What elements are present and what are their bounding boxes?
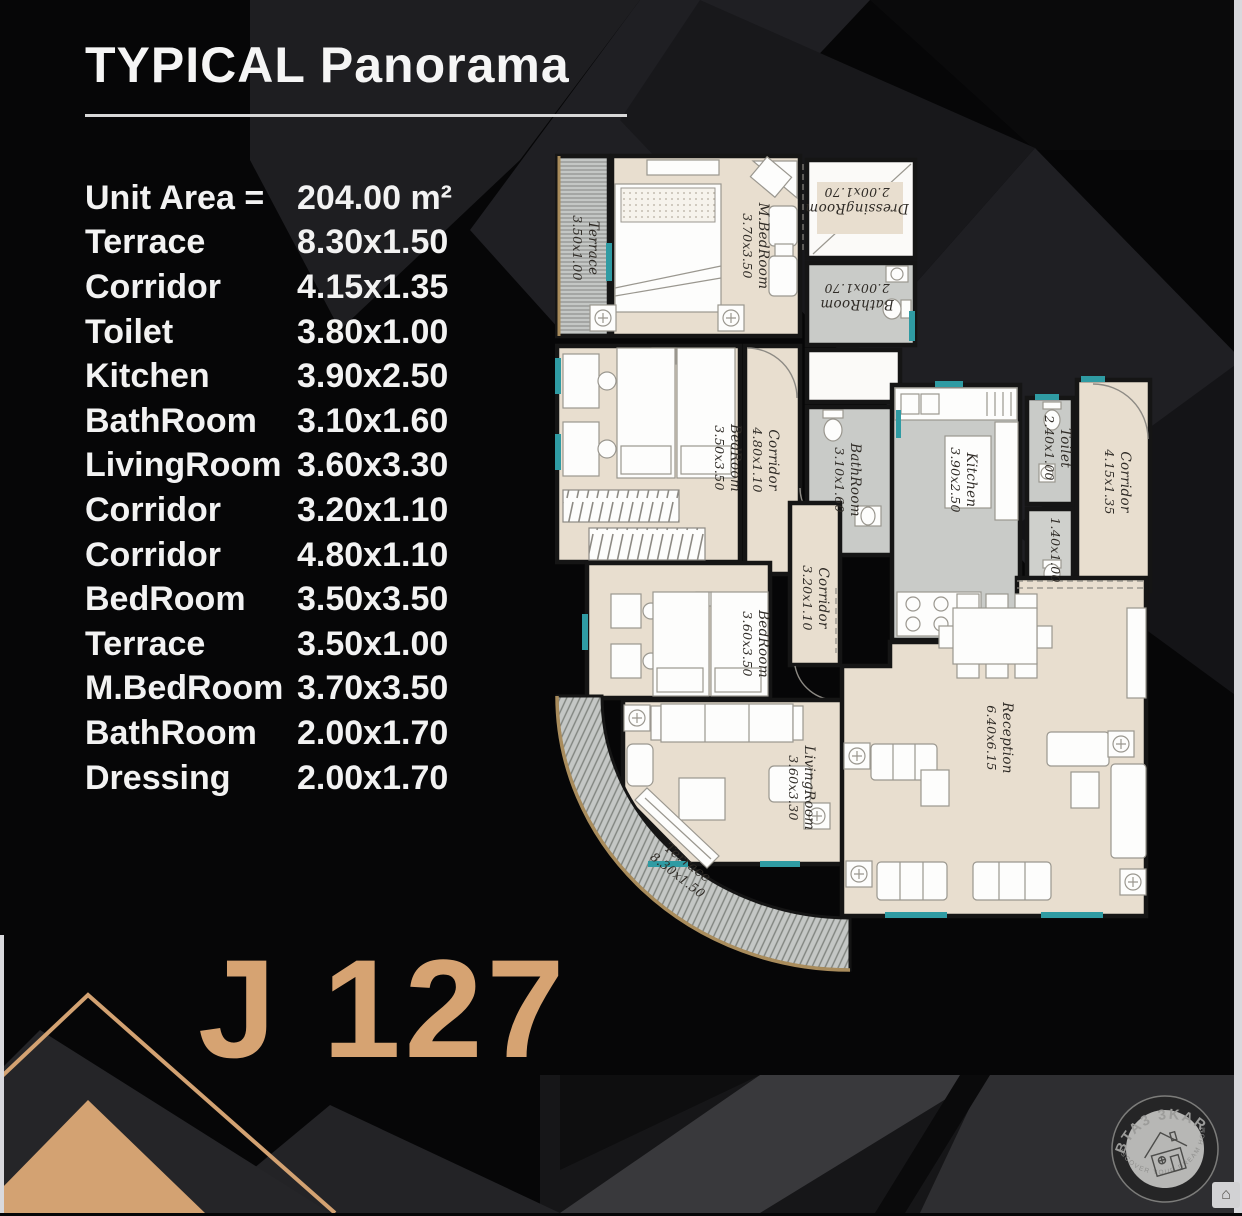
svg-text:3.10x1.60: 3.10x1.60 xyxy=(832,447,847,512)
spec-room-dims: 3.10x1.60 xyxy=(297,402,448,441)
spec-room-name: M.BedRoom xyxy=(85,669,297,708)
svg-text:Corridor: Corridor xyxy=(1117,451,1133,514)
spec-row: Corridor4.80x1.10 xyxy=(85,533,452,578)
left-edge-strip xyxy=(0,935,4,1213)
wardrobe-icon xyxy=(589,528,705,560)
room-label: 1.40x1.00 xyxy=(1048,517,1063,582)
unit-area-label: Unit Area = xyxy=(85,179,297,218)
room-label: BedRoom3.60x3.50 xyxy=(740,609,771,678)
room-label: Corridor4.15x1.35 xyxy=(1102,448,1133,514)
floor-plan: Terrace3.50x1.00 M.BedRoom3.70x3.50 Dres… xyxy=(555,148,1160,983)
spec-room-name: BathRoom xyxy=(85,714,297,753)
unit-area-row: Unit Area = 204.00 m² xyxy=(85,176,452,221)
room-label: M.BedRoom3.70x3.50 xyxy=(740,202,771,290)
spec-room-name: Terrace xyxy=(85,223,297,262)
svg-text:BathRoom: BathRoom xyxy=(820,296,895,312)
svg-text:2.00x1.70: 2.00x1.70 xyxy=(824,281,890,296)
spec-room-name: LivingRoom xyxy=(85,446,297,485)
unit-area-value: 204.00 m² xyxy=(297,179,452,218)
svg-text:Toilet: Toilet xyxy=(1057,428,1073,468)
room-label: Corridor4.80x1.10 xyxy=(750,426,781,492)
svg-text:Reception: Reception xyxy=(999,701,1015,774)
spec-row: Terrace8.30x1.50 xyxy=(85,221,452,266)
bed-icon xyxy=(653,592,709,696)
room-label: Corridor3.20x1.10 xyxy=(800,565,831,630)
spec-row: BedRoom3.50x3.50 xyxy=(85,577,452,622)
spec-row: M.BedRoom3.70x3.50 xyxy=(85,667,452,712)
svg-text:3.70x3.50: 3.70x3.50 xyxy=(740,213,755,278)
svg-text:3.20x1.10: 3.20x1.10 xyxy=(800,565,815,630)
svg-text:4.15x1.35: 4.15x1.35 xyxy=(1102,448,1117,514)
spec-room-name: Dressing xyxy=(85,759,297,798)
unit-code: J 127 xyxy=(198,928,568,1090)
spec-row: Terrace3.50x1.00 xyxy=(85,622,452,667)
spec-row: BathRoom3.10x1.60 xyxy=(85,399,452,444)
spec-room-name: Toilet xyxy=(85,313,297,352)
bed-icon xyxy=(617,348,675,478)
spec-row: Corridor4.15x1.35 xyxy=(85,265,452,310)
room-label: LivingRoom3.60x3.30 xyxy=(786,745,817,831)
spec-room-dims: 2.00x1.70 xyxy=(297,714,448,753)
spec-room-name: BedRoom xyxy=(85,580,297,619)
room-specs-list: Unit Area = 204.00 m² Terrace8.30x1.50 C… xyxy=(85,176,452,800)
svg-text:3.60x3.50: 3.60x3.50 xyxy=(740,611,755,676)
spec-room-dims: 3.60x3.30 xyxy=(297,446,448,485)
svg-text:DressingRoom: DressingRoom xyxy=(805,200,910,216)
svg-text:Kitchen: Kitchen xyxy=(963,452,979,508)
house-chip-icon: ⌂ xyxy=(1212,1182,1240,1208)
svg-text:3.90x2.50: 3.90x2.50 xyxy=(948,447,963,512)
spec-room-dims: 3.20x1.10 xyxy=(297,491,448,530)
spec-row: Kitchen3.90x2.50 xyxy=(85,354,452,399)
spec-room-dims: 3.70x3.50 xyxy=(297,669,448,708)
room-duct xyxy=(807,350,900,402)
svg-text:1.40x1.00: 1.40x1.00 xyxy=(1048,517,1063,582)
spec-room-name: Corridor xyxy=(85,536,297,575)
spec-row: Corridor3.20x1.10 xyxy=(85,488,452,533)
spec-room-name: Corridor xyxy=(85,268,297,307)
right-edge-strip xyxy=(1234,0,1242,1213)
svg-text:BathRoom: BathRoom xyxy=(847,442,863,517)
spec-room-dims: 8.30x1.50 xyxy=(297,223,448,262)
svg-text:3.50x1.00: 3.50x1.00 xyxy=(570,215,585,280)
room-label: BedRoom3.50x3.50 xyxy=(712,423,743,492)
svg-text:6.40x6.15: 6.40x6.15 xyxy=(984,705,999,770)
spec-room-dims: 2.00x1.70 xyxy=(297,759,448,798)
svg-text:M.BedRoom: M.BedRoom xyxy=(755,202,771,290)
spec-room-name: Terrace xyxy=(85,625,297,664)
spec-room-dims: 4.15x1.35 xyxy=(297,268,448,307)
wardrobe-icon xyxy=(563,490,679,522)
svg-text:Corridor: Corridor xyxy=(815,567,831,630)
spec-room-name: BathRoom xyxy=(85,402,297,441)
title-underline xyxy=(85,114,627,117)
spec-room-dims: 3.90x2.50 xyxy=(297,357,448,396)
svg-text:3.50x3.50: 3.50x3.50 xyxy=(712,425,727,490)
spec-room-dims: 4.80x1.10 xyxy=(297,536,448,575)
spec-row: LivingRoom3.60x3.30 xyxy=(85,444,452,489)
room-label: BathRoom3.10x1.60 xyxy=(832,442,863,517)
svg-text:Terrace: Terrace xyxy=(585,221,601,276)
page-title: TYPICAL Panorama xyxy=(85,36,570,94)
spec-row: Dressing2.00x1.70 xyxy=(85,756,452,801)
spec-room-name: Corridor xyxy=(85,491,297,530)
spec-room-dims: 3.50x1.00 xyxy=(297,625,448,664)
svg-text:BedRoom: BedRoom xyxy=(755,609,771,678)
spec-room-dims: 3.50x3.50 xyxy=(297,580,448,619)
svg-text:Corridor: Corridor xyxy=(765,429,781,492)
spec-row: Toilet3.80x1.00 xyxy=(85,310,452,355)
svg-text:2.00x1.70: 2.00x1.70 xyxy=(824,185,890,200)
svg-text:BedRoom: BedRoom xyxy=(727,423,743,492)
svg-text:3.60x3.30: 3.60x3.30 xyxy=(786,755,801,820)
room-label: Kitchen3.90x2.50 xyxy=(948,447,979,512)
spec-room-name: Kitchen xyxy=(85,357,297,396)
spec-room-dims: 3.80x1.00 xyxy=(297,313,448,352)
bed-icon xyxy=(615,184,721,312)
room-label: Terrace3.50x1.00 xyxy=(570,215,601,280)
svg-text:4.80x1.10: 4.80x1.10 xyxy=(750,426,765,492)
room-label: BathRoom2.00x1.70 xyxy=(820,281,895,312)
room-label: Reception6.40x6.15 xyxy=(984,701,1015,774)
svg-text:2.40x1.00: 2.40x1.00 xyxy=(1042,414,1057,480)
toilet-icon xyxy=(823,410,843,441)
svg-text:LivingRoom: LivingRoom xyxy=(801,745,817,831)
spec-row: BathRoom2.00x1.70 xyxy=(85,711,452,756)
